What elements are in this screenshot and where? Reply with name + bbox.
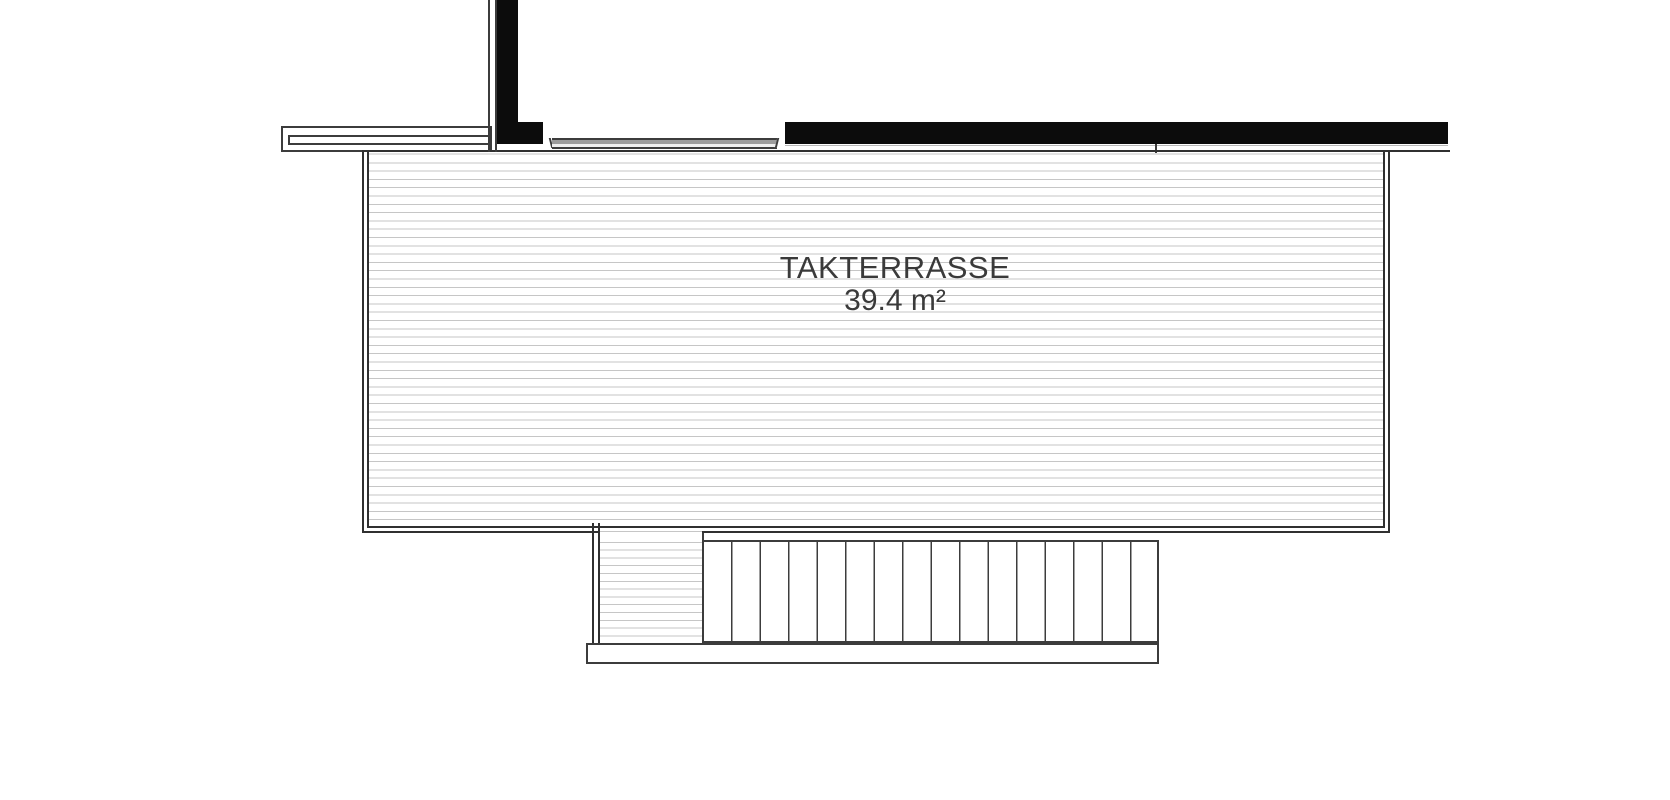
sliding-door-glazing [552,138,777,149]
wall-top-horizontal [785,122,1448,144]
room-name-label: TAKTERRASSE [400,251,1390,284]
partition-wall-lines [488,0,497,152]
floor-plan-canvas: TAKTERRASSE 39.4 m² [0,0,1670,800]
lower-deck-strip [600,531,702,643]
room-label: TAKTERRASSE 39.4 m² [362,251,1390,317]
deck-top-edge-line [362,150,1450,152]
step-edge-double-line [592,523,600,645]
room-area-label: 39.4 m² [400,284,1390,317]
wall-vertical-foot [497,122,543,144]
terrace-deck [362,152,1390,533]
staircase-treads [702,540,1159,643]
wall-outline-underline [785,145,1448,146]
deck-hatch-pattern [367,152,1385,528]
stair-base-landing [586,643,1159,664]
railing-inner-frame [288,135,492,145]
